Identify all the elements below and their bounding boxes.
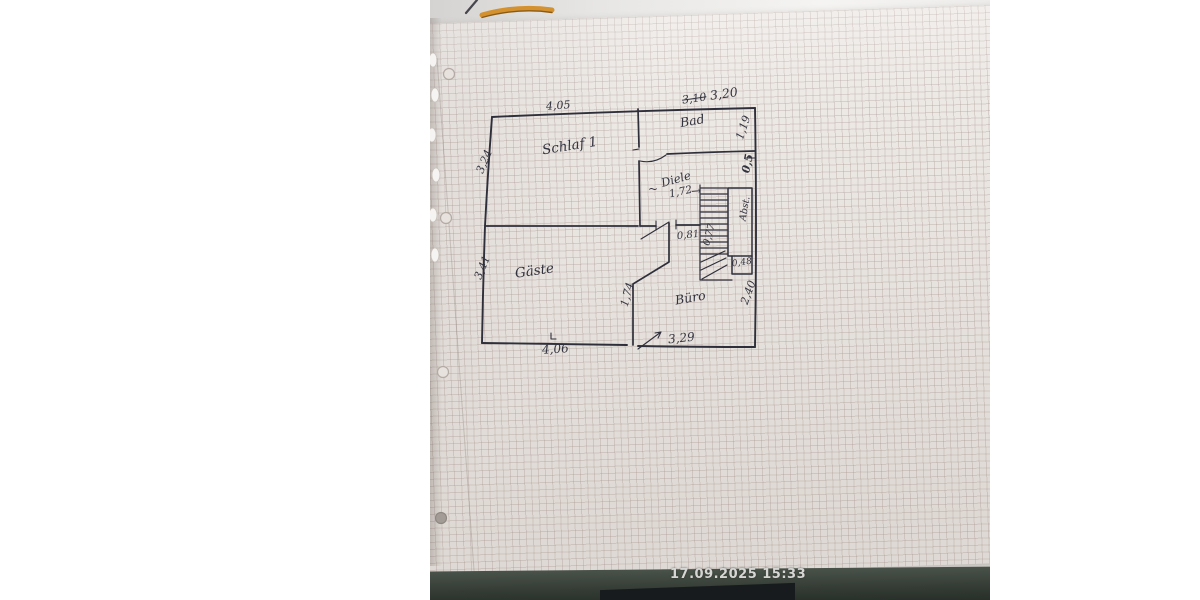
dim-door: 0,81 (677, 230, 700, 242)
dim-top-right-struck: 3,10 (681, 91, 707, 105)
dim-stairs: 0,77 (702, 223, 717, 247)
diele-tilde-mark: ~ (648, 183, 658, 195)
dim-top-right: 3,20 (709, 86, 738, 102)
dim-top-left: 4,05 (546, 99, 571, 112)
page-background: 4,05 3,10 3,20 Bad Schlaf 1 1,19 0,5 3,2… (0, 0, 1200, 600)
camera-timestamp: 17.09.2025 15:33 (670, 567, 806, 582)
diele-arrow-mark: → (690, 185, 701, 198)
dim-left-schlaf: 3,24 (475, 148, 494, 175)
room-label-schlaf: Schlaf 1 (541, 136, 598, 158)
dim-right-mid: 0,5 (740, 153, 755, 174)
dim-diele: 1,72 (668, 185, 693, 200)
dim-bottom-left: 4,06 (542, 342, 569, 356)
floorplan-photo: 4,05 3,10 3,20 Bad Schlaf 1 1,19 0,5 3,2… (430, 0, 990, 600)
room-label-gaeste: Gäste (514, 262, 555, 281)
plan-labels: 4,05 3,10 3,20 Bad Schlaf 1 1,19 0,5 3,2… (430, 0, 990, 600)
dim-right-buero: 2,40 (739, 279, 758, 306)
room-label-abstell: Abst. (739, 196, 753, 222)
dim-buero-left: 1,74 (619, 281, 636, 308)
dim-niche: 0,48 (731, 258, 752, 270)
room-label-bad: Bad (679, 113, 705, 130)
dim-left-gaeste: 3,41 (473, 254, 492, 281)
room-label-buero: Büro (674, 289, 706, 307)
dim-right-bad: 1,19 (734, 114, 752, 141)
dim-bottom-right: 3,29 (667, 331, 695, 346)
